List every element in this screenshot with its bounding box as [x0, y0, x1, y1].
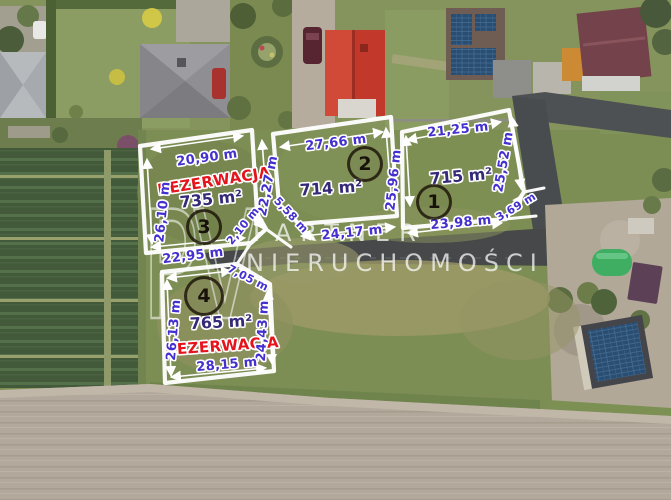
aerial-photo-scene: PV PARTNER NIERUCHOMOŚCI	[0, 0, 671, 500]
plot2-number: 2	[358, 153, 371, 175]
aerial-plot-map: PV PARTNER NIERUCHOMOŚCI 20,90 m REZERWA…	[0, 0, 671, 500]
plot3-number-badge: 3	[186, 209, 222, 245]
plot3-number: 3	[197, 216, 210, 238]
solar-barn	[573, 315, 653, 390]
plot4-right-length: 24,43 m	[254, 300, 272, 362]
crop-field	[0, 118, 146, 390]
maroon-car	[303, 27, 322, 64]
watermark-line2: NIERUCHOMOŚCI	[246, 247, 544, 277]
plot4-number-badge: 4	[184, 276, 224, 316]
white-car	[33, 21, 47, 39]
plot2-number-badge: 2	[347, 146, 383, 182]
plot1-number-badge: 1	[416, 184, 452, 220]
purple-roof-shed	[627, 262, 663, 304]
red-car	[212, 68, 226, 99]
plot4-number: 4	[197, 285, 210, 307]
plot1-number: 1	[427, 191, 440, 213]
shed	[493, 60, 531, 98]
red-roof-house	[325, 30, 385, 118]
